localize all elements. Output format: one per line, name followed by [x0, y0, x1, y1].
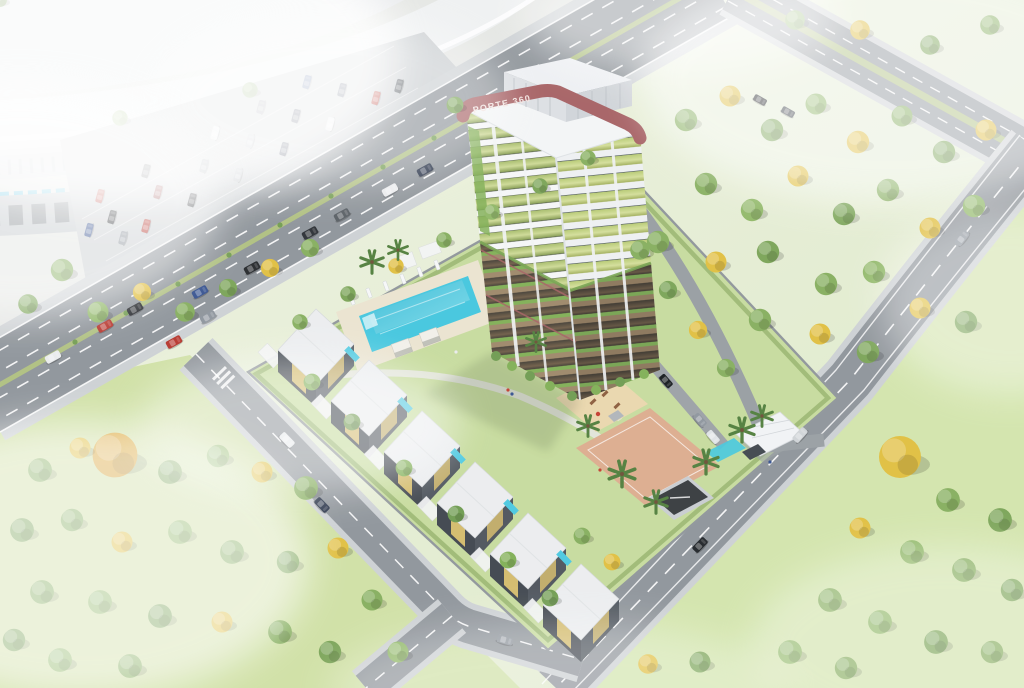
scene-svg: PORTE 360	[0, 0, 1024, 688]
light-veil	[0, 0, 1024, 688]
aerial-render: PORTE 360	[0, 0, 1024, 688]
fog-overlays	[0, 0, 1024, 688]
